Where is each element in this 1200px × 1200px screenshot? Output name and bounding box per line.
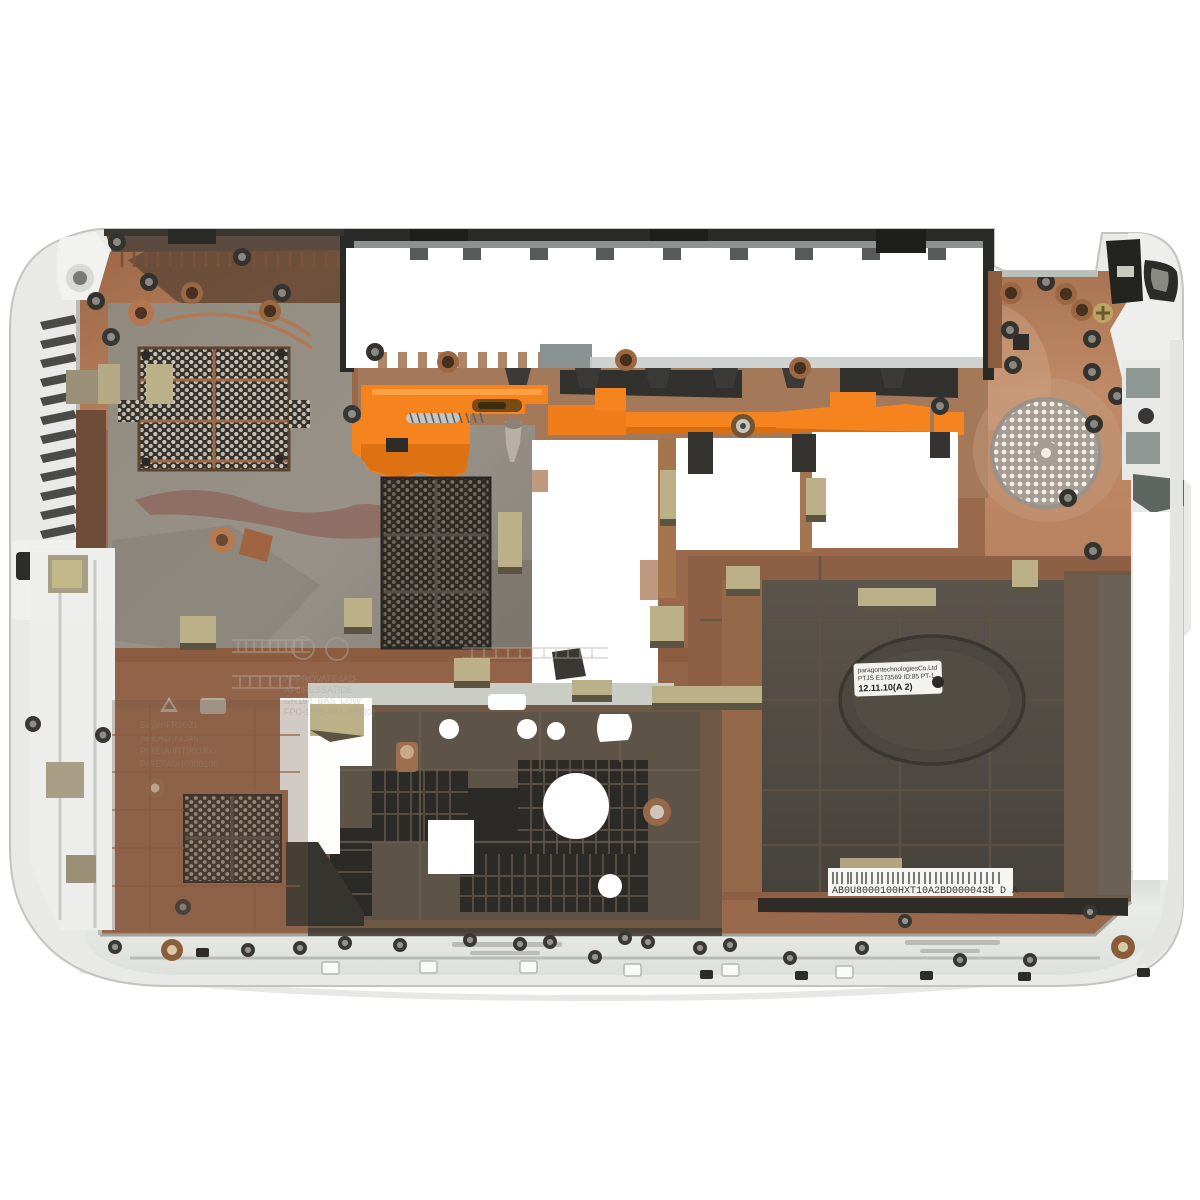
svg-text:APDRESSATIDE: APDRESSATIDE [284, 685, 353, 695]
svg-text:12.11.10(A 2): 12.11.10(A 2) [858, 682, 913, 694]
svg-text:AB0U8000100HXT10A2BD000043B D: AB0U8000100HXT10A2BD000043B D A [832, 886, 1018, 897]
